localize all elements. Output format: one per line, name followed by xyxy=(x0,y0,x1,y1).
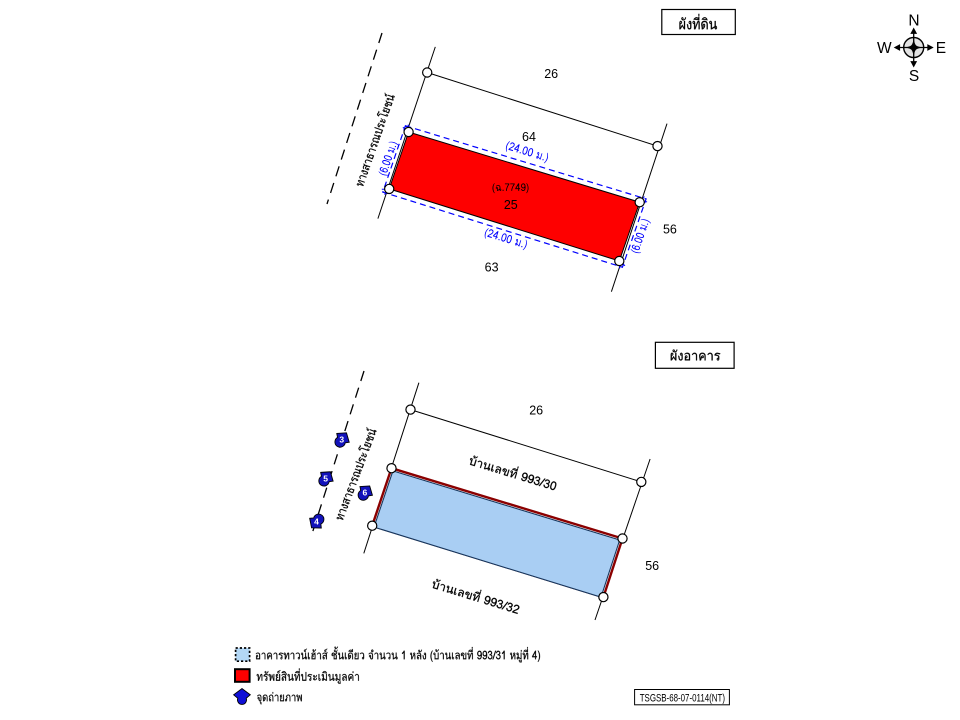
svg-text:56: 56 xyxy=(663,222,677,236)
svg-text:3: 3 xyxy=(339,434,344,444)
svg-text:26: 26 xyxy=(529,403,543,417)
svg-text:6: 6 xyxy=(363,488,368,498)
svg-text:25: 25 xyxy=(504,198,518,212)
svg-text:56: 56 xyxy=(645,559,659,573)
svg-text:4: 4 xyxy=(314,517,319,527)
svg-text:TSGSB-68-07-0114(NT): TSGSB-68-07-0114(NT) xyxy=(640,693,725,705)
svg-text:S: S xyxy=(909,68,919,85)
svg-text:63: 63 xyxy=(485,261,499,275)
svg-text:N: N xyxy=(908,13,919,30)
svg-text:64: 64 xyxy=(522,130,536,144)
svg-text:W: W xyxy=(877,40,892,57)
svg-text:26: 26 xyxy=(544,67,558,81)
svg-text:5: 5 xyxy=(323,473,328,483)
svg-text:E: E xyxy=(936,40,946,57)
